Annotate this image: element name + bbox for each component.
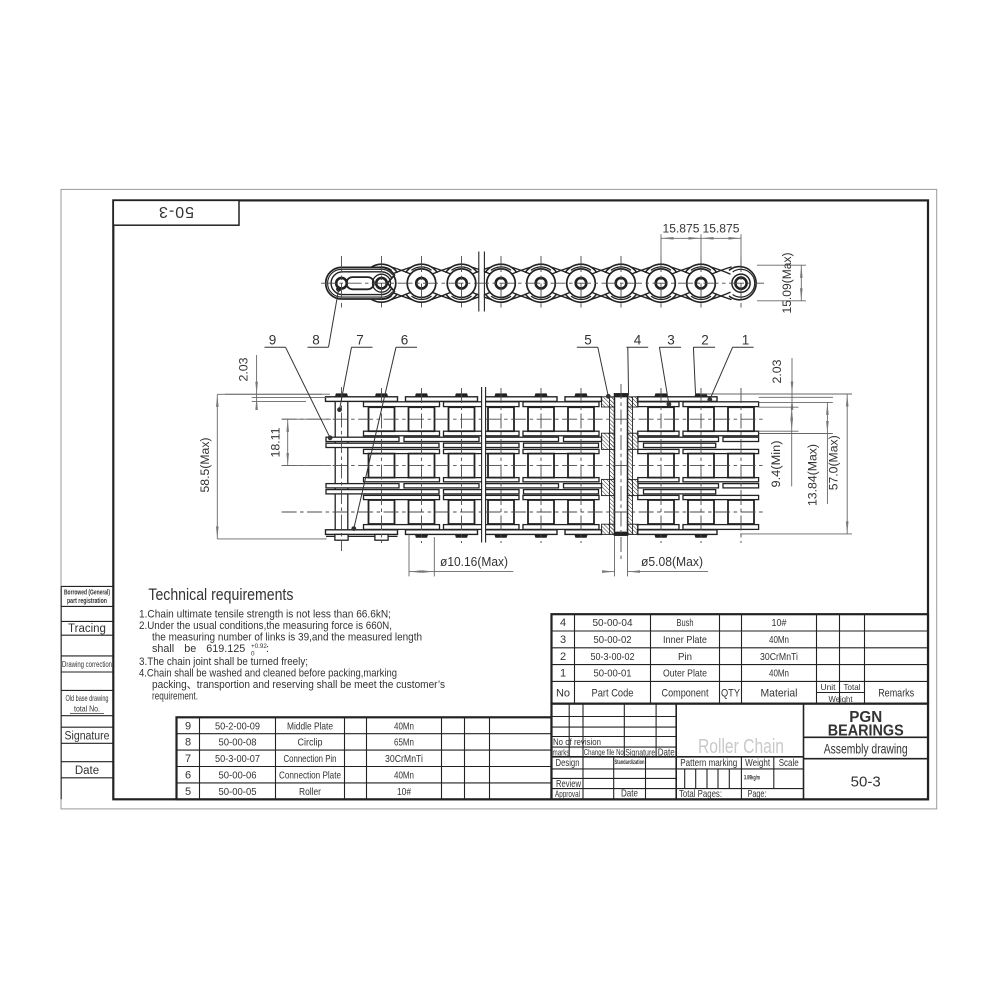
- svg-text:requirement.: requirement.: [152, 691, 198, 703]
- svg-text:3.09kg/m: 3.09kg/m: [744, 776, 760, 782]
- svg-text:0: 0: [251, 651, 255, 658]
- svg-text:15.875: 15.875: [703, 222, 740, 236]
- svg-text:4: 4: [560, 617, 566, 629]
- svg-text:Connection Pin: Connection Pin: [284, 753, 337, 765]
- svg-text:Material: Material: [761, 688, 798, 700]
- svg-text:50-3: 50-3: [851, 774, 881, 791]
- svg-text:57.0(Max): 57.0(Max): [827, 435, 841, 490]
- svg-text:2: 2: [701, 333, 709, 348]
- svg-text:40Mn: 40Mn: [394, 720, 414, 732]
- svg-text:ø10.16(Max): ø10.16(Max): [440, 555, 508, 569]
- svg-text:Drawing correction: Drawing correction: [62, 660, 112, 669]
- svg-text:Date: Date: [658, 747, 675, 759]
- svg-text:58.5(Max): 58.5(Max): [198, 438, 212, 493]
- svg-text:Signature: Signature: [65, 731, 110, 743]
- svg-text:50-2-00-09: 50-2-00-09: [215, 720, 260, 732]
- svg-text:1.Chain ultimate tensile stren: 1.Chain ultimate tensile strength is not…: [139, 609, 391, 621]
- svg-text:10#: 10#: [397, 786, 411, 798]
- svg-text:30CrMnTi: 30CrMnTi: [385, 753, 423, 765]
- svg-text:8: 8: [312, 333, 320, 348]
- svg-text:Part Code: Part Code: [592, 688, 634, 700]
- svg-text:8: 8: [185, 737, 191, 749]
- svg-text:65Mn: 65Mn: [394, 737, 414, 749]
- svg-text:Inner Plate: Inner Plate: [663, 634, 707, 646]
- svg-text:Pin: Pin: [678, 651, 692, 663]
- svg-text:7: 7: [185, 753, 191, 765]
- svg-text:6: 6: [185, 770, 191, 782]
- svg-text:10#: 10#: [772, 617, 787, 629]
- svg-text:4.Chain shall be washed and cl: 4.Chain shall be washed and cleaned befo…: [139, 668, 397, 680]
- svg-text:Unit: Unit: [821, 682, 837, 692]
- svg-text:Old base drawing: Old base drawing: [66, 693, 109, 703]
- svg-text:9: 9: [185, 720, 191, 732]
- svg-text:30CrMnTi: 30CrMnTi: [760, 651, 798, 663]
- svg-text:13.84(Max): 13.84(Max): [805, 444, 819, 506]
- svg-text:15.875: 15.875: [663, 222, 700, 236]
- svg-text:Approval: Approval: [555, 789, 580, 800]
- svg-text::: :: [266, 643, 269, 655]
- svg-text:50-3: 50-3: [158, 203, 194, 220]
- svg-text:Outer Plate: Outer Plate: [663, 668, 707, 680]
- svg-text:2.03: 2.03: [770, 359, 784, 383]
- svg-text:50-00-04: 50-00-04: [593, 617, 633, 629]
- svg-text:packing、transportion and reser: packing、transportion and reserving shall…: [152, 679, 446, 691]
- svg-text:Roller: Roller: [299, 786, 321, 798]
- svg-text:9: 9: [269, 333, 277, 348]
- svg-text:1: 1: [560, 668, 566, 680]
- svg-text:+0.92: +0.92: [251, 643, 267, 650]
- svg-text:shall be 619.125: shall be 619.125: [152, 643, 245, 655]
- svg-text:2.03: 2.03: [237, 357, 251, 381]
- svg-text:Date: Date: [75, 765, 99, 777]
- svg-text:Component: Component: [662, 688, 709, 700]
- svg-text:Page:: Page:: [748, 788, 767, 800]
- svg-text:Pattern marking: Pattern marking: [680, 757, 737, 769]
- svg-text:2: 2: [560, 651, 566, 663]
- svg-text:Technical requirements: Technical requirements: [148, 585, 293, 604]
- svg-text:Weight: Weight: [745, 757, 770, 769]
- svg-text:9.4(Min): 9.4(Min): [769, 441, 783, 488]
- svg-text:Assembly drawing: Assembly drawing: [824, 742, 908, 757]
- svg-text:Change file No: Change file No: [584, 747, 624, 757]
- svg-text:50-00-01: 50-00-01: [594, 668, 632, 680]
- svg-text:Design: Design: [556, 757, 580, 769]
- svg-text:50-3-00-07: 50-3-00-07: [215, 753, 260, 765]
- svg-text:50-00-08: 50-00-08: [219, 737, 257, 749]
- svg-text:QTY: QTY: [721, 688, 741, 700]
- svg-text:Remarks: Remarks: [878, 688, 914, 700]
- svg-text:Tracing: Tracing: [68, 623, 106, 635]
- svg-text:40Mn: 40Mn: [769, 668, 789, 680]
- svg-text:18.11: 18.11: [268, 427, 282, 457]
- svg-text:ø5.08(Max): ø5.08(Max): [641, 555, 703, 569]
- svg-text:Weight: Weight: [829, 694, 854, 704]
- svg-text:5: 5: [185, 786, 191, 798]
- svg-text:6: 6: [401, 333, 409, 348]
- svg-text:Scale: Scale: [779, 757, 799, 769]
- svg-text:Total: Total: [844, 682, 861, 692]
- svg-text:Signature: Signature: [625, 747, 655, 758]
- svg-text:50-00-06: 50-00-06: [219, 770, 257, 782]
- svg-text:No: No: [556, 688, 570, 700]
- svg-text:Circlip: Circlip: [298, 737, 323, 749]
- svg-text:1: 1: [742, 333, 750, 348]
- svg-text:Bush: Bush: [677, 617, 694, 629]
- svg-text:7: 7: [356, 333, 364, 348]
- svg-text:15.09(Max): 15.09(Max): [780, 253, 794, 314]
- svg-text:the measuring number of links: the measuring number of links is 39,and …: [152, 632, 422, 644]
- svg-text:3.The chain joint shall be tur: 3.The chain joint shall be turned freely…: [139, 656, 308, 668]
- svg-text:Roller Chain: Roller Chain: [698, 736, 784, 758]
- svg-text:total No.: total No.: [74, 704, 100, 714]
- svg-text:50-3-00-02: 50-3-00-02: [591, 651, 635, 663]
- svg-text:BEARINGS: BEARINGS: [828, 723, 904, 740]
- svg-text:5: 5: [584, 333, 592, 348]
- svg-text:3: 3: [667, 333, 675, 348]
- svg-text:part registration: part registration: [67, 598, 107, 605]
- svg-text:Borrowed (General): Borrowed (General): [64, 590, 110, 597]
- svg-text:4: 4: [634, 333, 642, 348]
- svg-text:Total Pages:: Total Pages:: [679, 788, 722, 800]
- svg-text:40Mn: 40Mn: [769, 634, 789, 646]
- svg-text:Connection Plate: Connection Plate: [279, 770, 341, 782]
- svg-text:Standardization: Standardization: [615, 759, 645, 766]
- svg-text:Date: Date: [621, 788, 638, 800]
- svg-text:50-00-02: 50-00-02: [594, 634, 632, 646]
- svg-text:3: 3: [560, 634, 566, 646]
- svg-text:2.Under the usual conditions,t: 2.Under the usual conditions,the measuri…: [139, 620, 392, 632]
- svg-text:Middle Plate: Middle Plate: [287, 720, 333, 732]
- svg-text:40Mn: 40Mn: [394, 770, 414, 782]
- svg-text:50-00-05: 50-00-05: [219, 786, 257, 798]
